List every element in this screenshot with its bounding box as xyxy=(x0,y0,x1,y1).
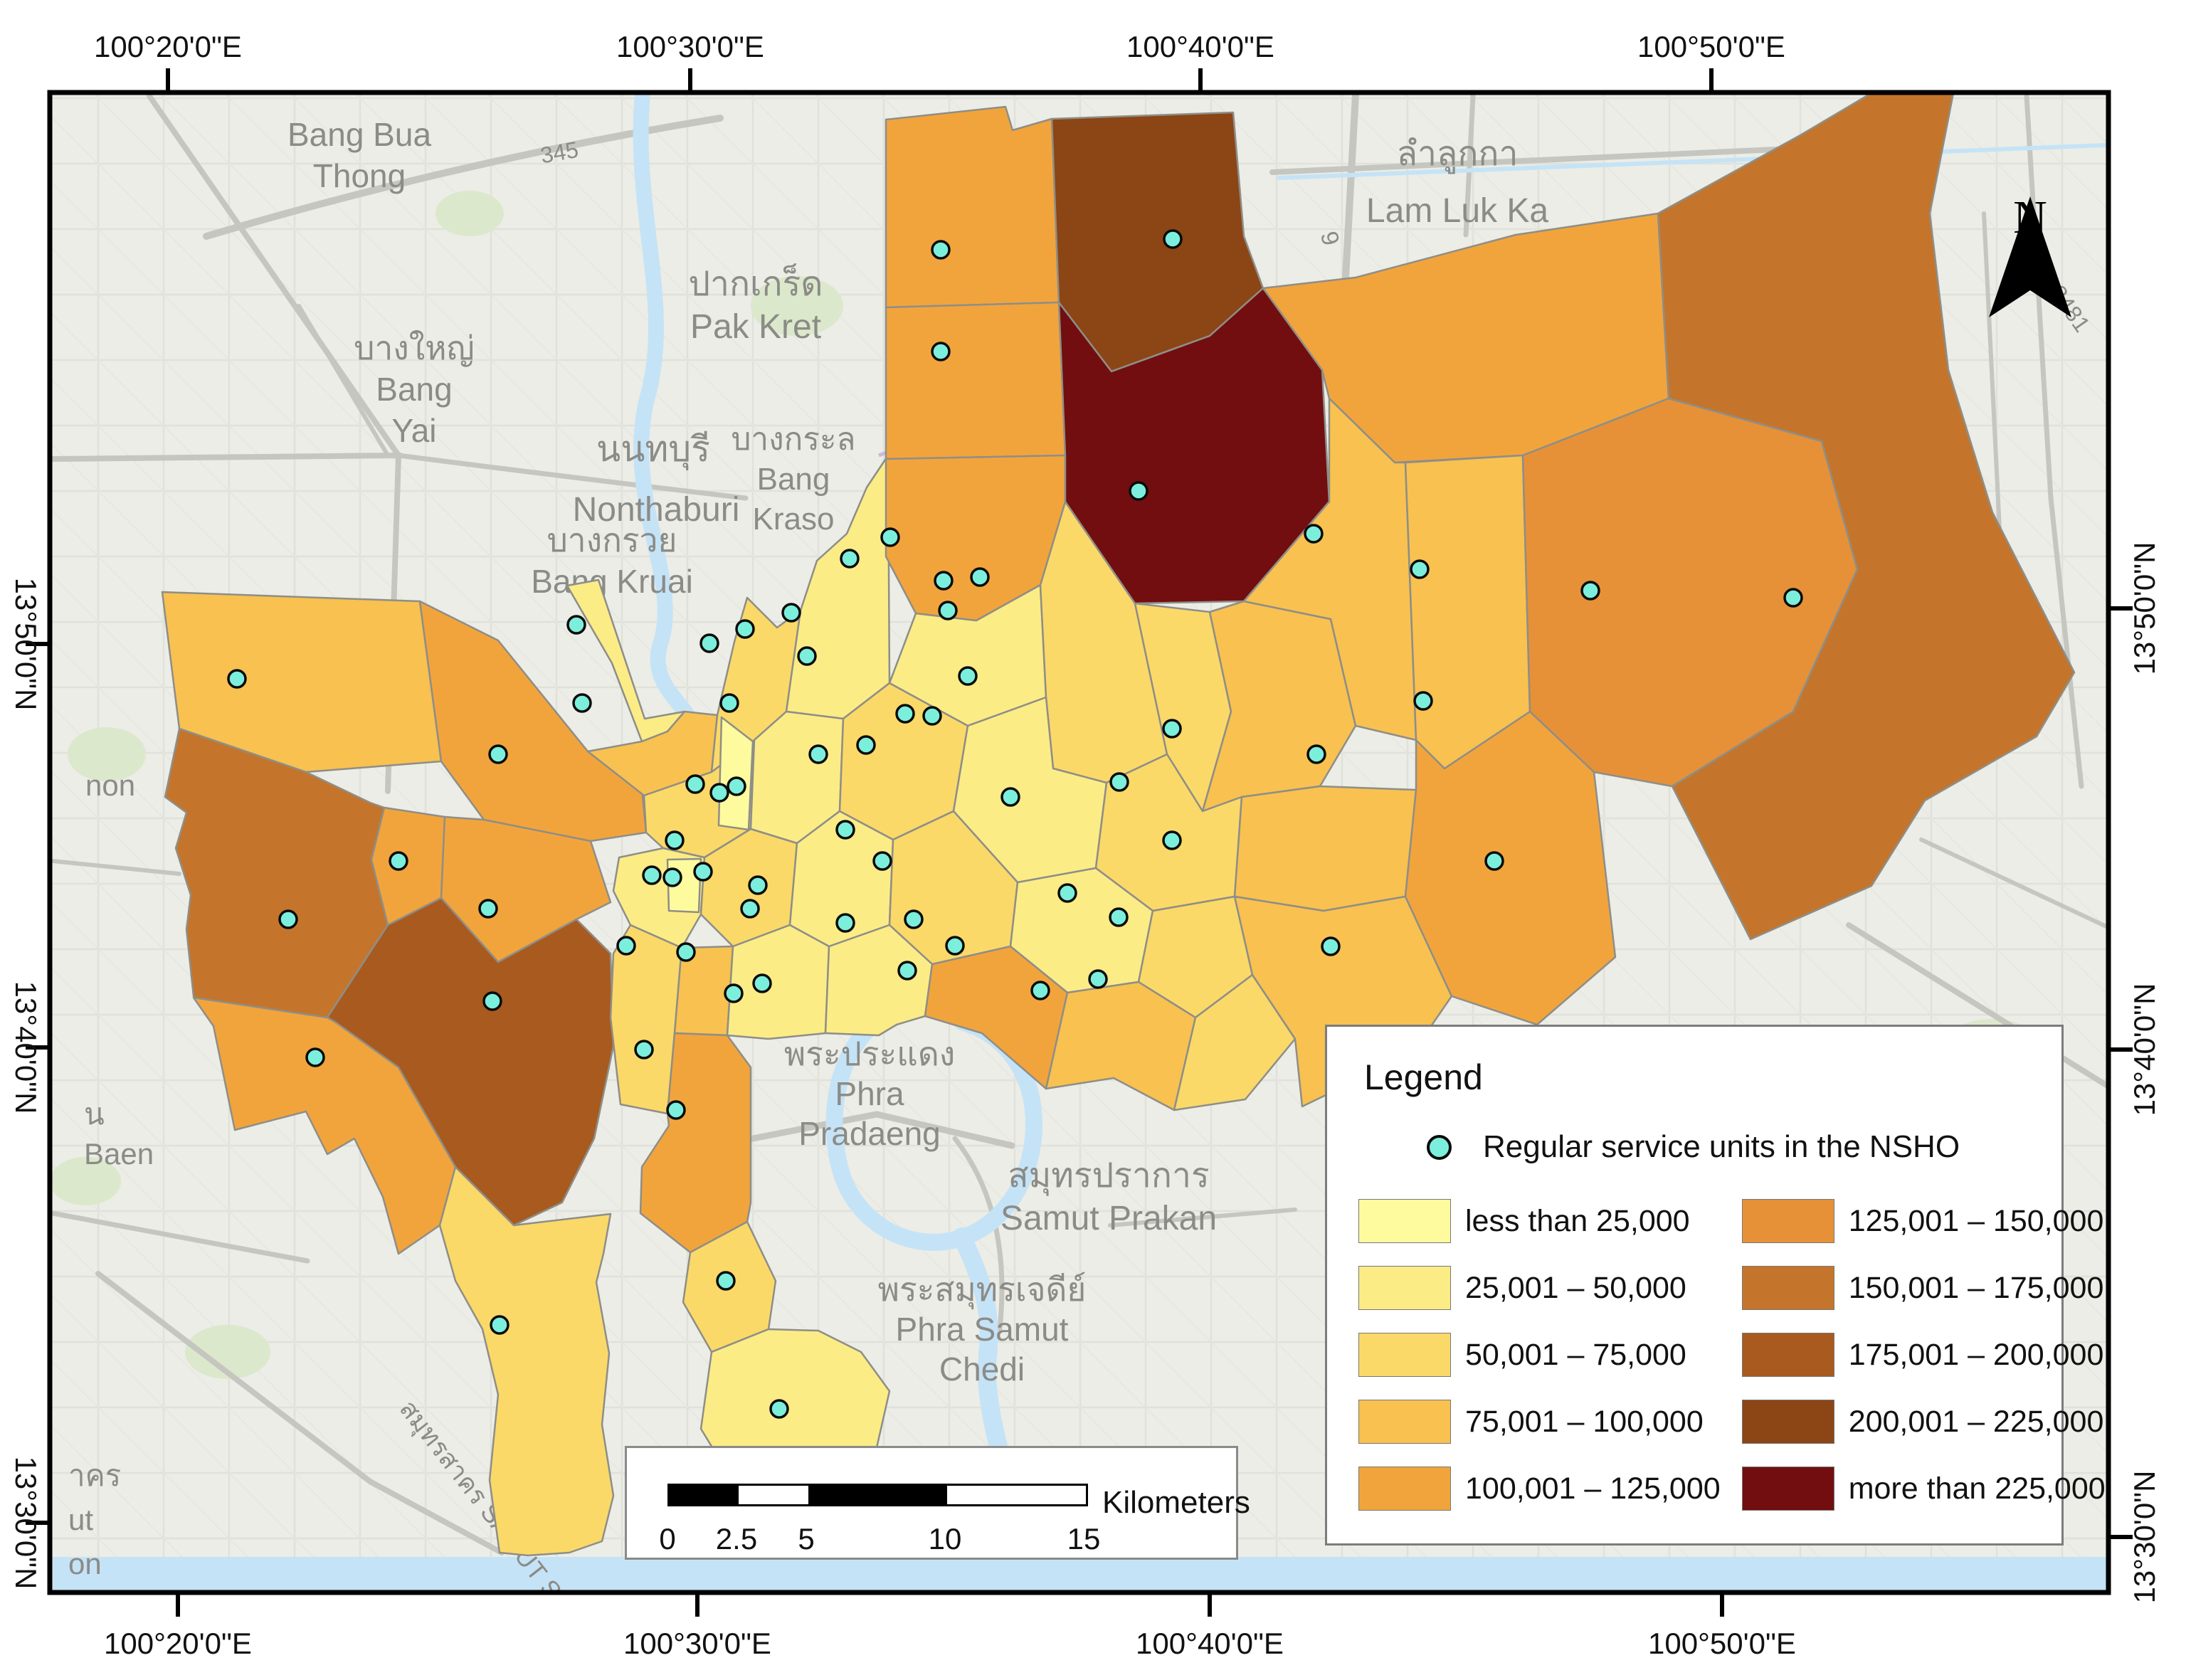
legend-swatch xyxy=(1358,1333,1451,1377)
legend-class-item: 150,001 – 175,000 xyxy=(1742,1266,2106,1310)
service-unit-dot xyxy=(874,852,891,870)
service-unit-dot xyxy=(1415,692,1432,709)
legend-class-label: 125,001 – 150,000 xyxy=(1849,1204,2104,1239)
service-unit-dot xyxy=(837,914,854,931)
service-unit-dot xyxy=(1002,788,1019,805)
service-unit-dot xyxy=(695,863,712,880)
service-unit-dot xyxy=(741,900,759,917)
service-unit-dot xyxy=(810,746,827,763)
scale-bar: 02.551015 Kilometers xyxy=(625,1446,1238,1560)
service-unit-dot xyxy=(837,821,854,838)
service-unit-dot xyxy=(932,241,949,258)
service-unit-dot xyxy=(1111,773,1128,791)
longitude-label-top: 100°20'0"E xyxy=(94,30,242,64)
service-unit-dot xyxy=(882,529,899,546)
scale-bar-segment xyxy=(670,1486,739,1504)
service-unit-dot xyxy=(798,648,815,665)
service-unit-dot xyxy=(717,1272,734,1289)
scale-bar-number: 2.5 xyxy=(716,1522,757,1556)
longitude-label-top: 100°30'0"E xyxy=(616,30,764,64)
service-unit-dot xyxy=(899,962,916,979)
place-label: non xyxy=(85,768,135,802)
scale-bar-segment xyxy=(739,1486,808,1504)
service-unit-dot xyxy=(643,867,660,884)
longitude-label-top: 100°50'0"E xyxy=(1637,30,1785,64)
legend-class-label: 150,001 – 175,000 xyxy=(1849,1271,2104,1306)
service-unit-dot xyxy=(924,707,941,724)
service-unit-dot xyxy=(568,616,585,633)
legend-class-label: 100,001 – 125,000 xyxy=(1465,1472,1721,1506)
service-unit-dot xyxy=(971,569,988,586)
service-unit-dot xyxy=(491,1316,508,1333)
population-region xyxy=(1405,455,1530,768)
legend-swatch xyxy=(1742,1199,1834,1243)
longitude-label-bottom: 100°50'0"E xyxy=(1648,1627,1796,1661)
service-unit-dot xyxy=(728,778,745,795)
population-region xyxy=(886,302,1065,459)
legend-title: Legend xyxy=(1364,1057,2033,1098)
legend-class-item: less than 25,000 xyxy=(1358,1199,1721,1243)
legend-class-label: less than 25,000 xyxy=(1465,1204,1690,1239)
service-unit-dot-swatch xyxy=(1427,1135,1452,1160)
scale-bar-number: 15 xyxy=(1067,1522,1101,1556)
service-unit-dot xyxy=(1785,589,1802,606)
longitude-label-bottom: 100°20'0"E xyxy=(104,1627,252,1661)
legend-class-label: 25,001 – 50,000 xyxy=(1465,1271,1686,1306)
latitude-label-left: 13°50'0"N xyxy=(9,578,43,711)
service-unit-dot xyxy=(484,993,501,1010)
service-unit-dot xyxy=(701,635,718,652)
service-unit-dot xyxy=(1411,561,1428,578)
service-unit-dot xyxy=(1163,720,1181,737)
service-unit-dot xyxy=(754,975,771,992)
service-unit-dot xyxy=(1486,852,1503,870)
scale-bar-segments xyxy=(667,1484,1088,1506)
legend-class-item: more than 225,000 xyxy=(1742,1467,2106,1511)
latitude-label-right: 13°30'0"N xyxy=(2128,1471,2162,1604)
service-unit-dot xyxy=(1059,884,1076,902)
legend-swatch xyxy=(1358,1467,1451,1511)
population-region xyxy=(1235,786,1416,911)
place-label: นนทบุรี xyxy=(596,429,710,470)
park-patch xyxy=(435,191,504,236)
service-unit-dot xyxy=(749,877,766,894)
scale-bar-segment xyxy=(947,1486,1086,1504)
service-unit-dot xyxy=(721,694,738,712)
legend-class-item: 100,001 – 125,000 xyxy=(1358,1467,1721,1511)
latitude-label-left: 13°30'0"N xyxy=(9,1457,43,1590)
legend-class-label: 75,001 – 100,000 xyxy=(1465,1405,1704,1439)
service-unit-dot xyxy=(307,1049,324,1066)
legend-swatch xyxy=(1742,1333,1834,1377)
scale-bar-unit: Kilometers xyxy=(1102,1485,1250,1521)
legend-class-item: 75,001 – 100,000 xyxy=(1358,1400,1721,1444)
legend-class-item: 50,001 – 75,000 xyxy=(1358,1333,1721,1377)
legend-point-item: Regular service units in the NSHO xyxy=(1427,1129,2033,1165)
scale-bar-segment xyxy=(808,1486,947,1504)
service-unit-dot xyxy=(939,602,956,619)
service-unit-dot xyxy=(959,667,976,685)
sea-water xyxy=(53,1557,2106,1590)
latitude-label-right: 13°50'0"N xyxy=(2128,542,2162,675)
service-unit-dot xyxy=(946,937,963,954)
legend-swatch xyxy=(1358,1199,1451,1243)
legend-class-label: 200,001 – 225,000 xyxy=(1849,1405,2104,1439)
service-unit-dot xyxy=(1110,909,1127,926)
legend-class-label: more than 225,000 xyxy=(1849,1472,2106,1506)
scale-bar-number: 0 xyxy=(659,1522,675,1556)
service-unit-dot xyxy=(1582,582,1599,599)
legend-swatch xyxy=(1358,1266,1451,1310)
service-unit-dot xyxy=(1305,525,1322,542)
service-unit-dot xyxy=(783,604,800,621)
service-unit-dot xyxy=(1308,746,1325,763)
service-unit-dot xyxy=(1322,938,1339,955)
service-unit-dot xyxy=(736,620,754,638)
service-unit-dot xyxy=(1089,971,1107,988)
legend-swatch xyxy=(1358,1400,1451,1444)
service-unit-dot xyxy=(1130,482,1147,500)
service-unit-dot xyxy=(666,832,683,849)
service-unit-dot xyxy=(841,550,858,567)
legend-class-item: 25,001 – 50,000 xyxy=(1358,1266,1721,1310)
service-unit-dot xyxy=(280,911,297,928)
legend-point-label: Regular service units in the NSHO xyxy=(1483,1129,1960,1165)
legend-class-item: 125,001 – 150,000 xyxy=(1742,1199,2106,1243)
service-unit-dot xyxy=(857,736,875,754)
service-unit-dot xyxy=(711,784,728,801)
scale-bar-number: 5 xyxy=(798,1522,814,1556)
service-unit-dot xyxy=(1164,231,1181,248)
service-unit-dot xyxy=(725,985,742,1002)
service-unit-dot xyxy=(771,1400,788,1417)
legend-swatch xyxy=(1742,1467,1834,1511)
service-unit-dot xyxy=(905,911,922,928)
longitude-label-bottom: 100°30'0"E xyxy=(623,1627,771,1661)
service-unit-dot xyxy=(687,776,704,793)
service-unit-dot xyxy=(618,937,635,954)
service-unit-dot xyxy=(480,900,497,917)
scale-bar-number: 10 xyxy=(929,1522,962,1556)
legend-class-label: 50,001 – 75,000 xyxy=(1465,1338,1686,1373)
latitude-label-left: 13°40'0"N xyxy=(9,981,43,1114)
service-unit-dot xyxy=(664,869,681,886)
latitude-label-right: 13°40'0"N xyxy=(2128,983,2162,1116)
service-unit-dot xyxy=(228,670,245,687)
service-unit-dot xyxy=(932,343,949,360)
legend-class-item: 175,001 – 200,000 xyxy=(1742,1333,2106,1377)
service-unit-dot xyxy=(574,694,591,712)
service-unit-dot xyxy=(390,852,407,870)
service-unit-dot xyxy=(1032,982,1049,999)
population-region xyxy=(886,107,1059,307)
longitude-label-bottom: 100°40'0"E xyxy=(1136,1627,1284,1661)
legend-swatch xyxy=(1742,1400,1834,1444)
service-unit-dot xyxy=(635,1041,653,1058)
legend: Legend Regular service units in the NSHO… xyxy=(1325,1025,2064,1546)
population-region xyxy=(727,925,829,1039)
legend-classes: less than 25,00025,001 – 50,00050,001 – … xyxy=(1358,1199,2033,1511)
legend-class-label: 175,001 – 200,000 xyxy=(1849,1338,2104,1373)
longitude-label-top: 100°40'0"E xyxy=(1126,30,1274,64)
map-figure: Bang BuaThongบางใหญ่BangYaiนนทบุรีNontha… xyxy=(0,0,2186,1680)
north-arrow: N xyxy=(1980,191,2080,390)
service-unit-dot xyxy=(677,944,695,961)
service-unit-dot xyxy=(490,746,507,763)
legend-class-item: 200,001 – 225,000 xyxy=(1742,1400,2106,1444)
service-unit-dot xyxy=(897,705,914,722)
service-unit-dot xyxy=(1163,832,1181,849)
service-unit-dot xyxy=(667,1101,685,1119)
service-unit-dot xyxy=(935,572,952,589)
legend-swatch xyxy=(1742,1266,1834,1310)
north-arrow-icon xyxy=(1980,191,2080,333)
